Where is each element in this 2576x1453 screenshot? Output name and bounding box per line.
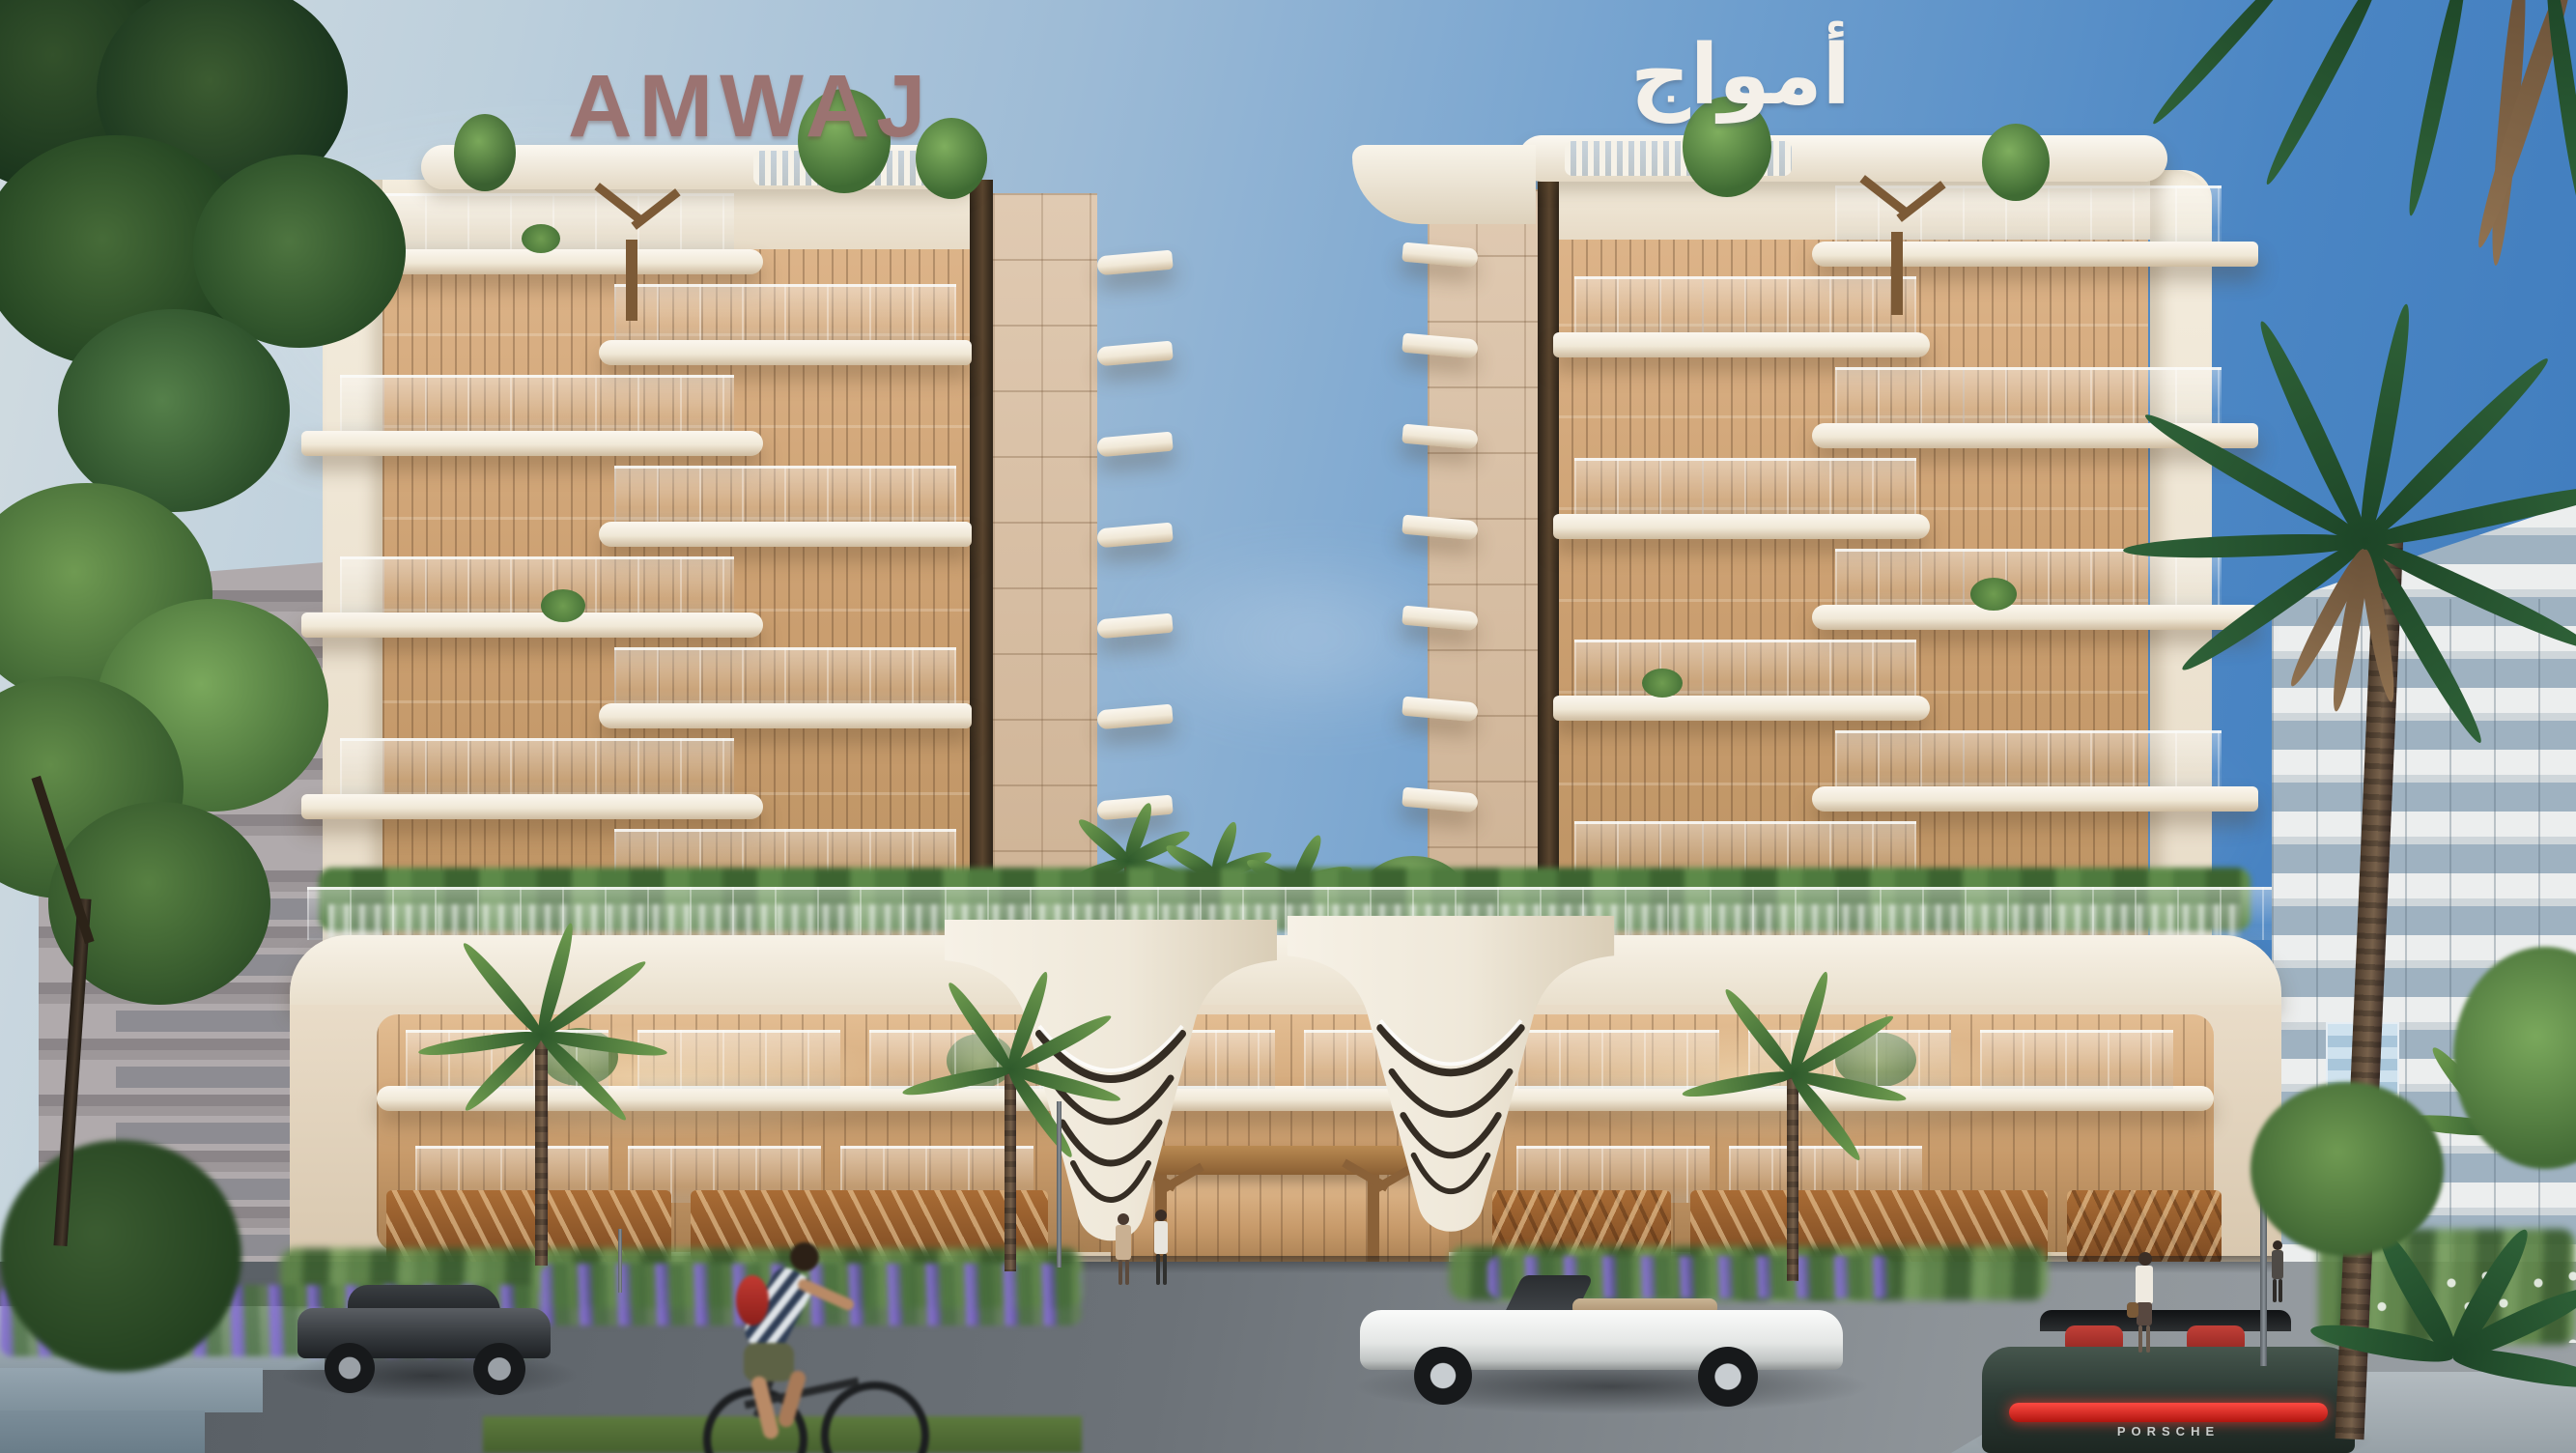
gap-balcony-left-tower	[1096, 341, 1173, 367]
pedestrian	[1151, 1210, 1171, 1285]
balcony-rail	[1574, 640, 1916, 698]
gap-balcony-left-tower	[1096, 250, 1173, 276]
cyclist-head	[790, 1242, 819, 1271]
balcony-slab	[599, 522, 972, 547]
palm-trunk	[1787, 1073, 1798, 1281]
pedestrian-body	[2272, 1250, 2283, 1279]
bicycle-wheel	[821, 1382, 929, 1453]
balcony-plant	[541, 589, 585, 622]
foreground-shrub	[0, 1140, 241, 1372]
left-tower-core-panels	[993, 193, 1097, 978]
cyclist-shorts	[744, 1343, 794, 1382]
sedan-car	[297, 1277, 551, 1383]
handbag	[2127, 1302, 2138, 1318]
tree-foliage	[58, 309, 290, 512]
pedestrian-head	[1118, 1213, 1129, 1225]
pedestrian-legs	[2138, 1325, 2142, 1353]
podium-rail	[1980, 1030, 2173, 1089]
porsche-convertible: PORSCHE	[1982, 1310, 2355, 1453]
balcony-slab	[1812, 786, 2258, 812]
pedestrian-legs	[1118, 1260, 1122, 1285]
left-steps	[0, 1368, 263, 1412]
pedestrian-with-bag	[2131, 1252, 2160, 1353]
white-convertible	[1360, 1264, 1843, 1389]
palm-leaf	[2259, 0, 2384, 188]
convertible-wheel	[1414, 1347, 1472, 1405]
palm-leaf	[2148, 0, 2295, 128]
sign-pole	[618, 1229, 622, 1293]
balcony-slab	[1812, 605, 2258, 630]
porsche-badge: PORSCHE	[2096, 1424, 2241, 1439]
left-roof-wood-column	[626, 240, 637, 321]
left-tower-bronze-fin	[970, 180, 993, 978]
balcony-plant	[522, 224, 560, 253]
foreground-tree-dark	[0, 0, 464, 560]
balcony-rail	[1574, 458, 1916, 517]
balcony-plant	[1642, 669, 1683, 698]
porsche-light-bar	[2009, 1403, 2328, 1422]
balcony-slab	[599, 340, 972, 365]
architectural-rendering: AMWAJ	[0, 0, 2576, 1453]
amwaj-sign: AMWAJ	[568, 56, 925, 157]
pedestrian-legs	[2273, 1279, 2277, 1302]
balcony-rail	[1574, 276, 1916, 335]
balcony-rail	[340, 738, 734, 797]
pedestrian-legs	[1156, 1254, 1160, 1285]
midground-tree	[2250, 1082, 2444, 1256]
balcony-rail	[614, 647, 956, 706]
pedestrian	[1113, 1213, 1134, 1285]
pedestrian-skirt	[2137, 1302, 2152, 1325]
palm-trunk	[1005, 1068, 1016, 1271]
sedan-wheel	[325, 1343, 375, 1393]
balcony-plant	[1970, 578, 2017, 611]
gap-balcony-left-tower	[1096, 432, 1173, 458]
pedestrian-head	[1155, 1210, 1167, 1221]
pedestrian-legs	[1125, 1260, 1129, 1285]
right-roof-canopy-wing	[1352, 145, 1536, 224]
balcony-rail	[1835, 549, 2222, 608]
v-sculpture-right	[1285, 916, 1617, 1260]
palm-trunk	[535, 1034, 548, 1266]
amwaj-arabic-sign: أمواج	[1625, 27, 1856, 124]
balcony-rail	[614, 466, 956, 525]
balcony-rail	[340, 556, 734, 615]
cyclist-backpack	[736, 1275, 769, 1325]
balcony-rail	[1835, 730, 2222, 789]
pedestrian-legs	[2279, 1279, 2282, 1302]
pedestrian-body	[2136, 1266, 2153, 1304]
podium-rail	[637, 1030, 840, 1089]
foreground-tree-mid	[0, 483, 386, 1121]
balcony-slab	[1812, 242, 2258, 267]
left-steps	[0, 1410, 205, 1453]
gap-balcony-left-tower	[1096, 795, 1173, 821]
pedestrian-body	[1116, 1225, 1131, 1260]
roof-tree	[1982, 124, 2050, 201]
pedestrian-head	[2273, 1240, 2282, 1250]
right-tower-bronze-fin	[1538, 170, 1559, 978]
balcony-rail	[614, 284, 956, 343]
sedan-wheel	[473, 1343, 525, 1395]
pedestrian-legs	[2146, 1325, 2150, 1353]
pedestrian	[2268, 1240, 2287, 1302]
balcony-slab	[1553, 696, 1930, 721]
balcony-slab	[599, 703, 972, 728]
pedestrian-head	[2138, 1252, 2152, 1266]
palm-leaf	[2402, 0, 2472, 217]
cyclist	[676, 1225, 927, 1453]
right-tower-core-panels	[1428, 189, 1538, 978]
right-roof-wood-column	[1891, 232, 1903, 315]
balcony-rail	[1835, 367, 2222, 426]
balcony-slab	[1553, 332, 1930, 357]
pedestrian-body	[1154, 1221, 1168, 1254]
convertible-wheel	[1698, 1347, 1758, 1407]
pedestrian-legs	[1163, 1254, 1167, 1285]
balcony-slab	[1553, 514, 1930, 539]
street-pole	[1057, 1101, 1062, 1268]
